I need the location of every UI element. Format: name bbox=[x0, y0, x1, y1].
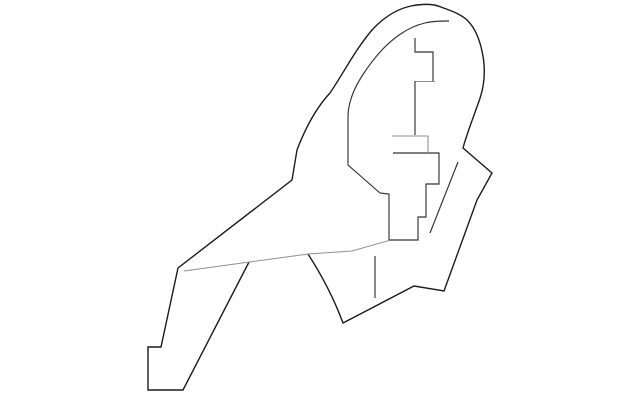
diagram-canvas bbox=[0, 0, 640, 401]
mid-step-gray-spur bbox=[392, 136, 428, 153]
upper-step-cutout bbox=[415, 38, 433, 81]
part-line-drawing bbox=[0, 0, 640, 401]
hatch-diagonal-line bbox=[430, 162, 458, 233]
outer-body-outline bbox=[148, 4, 492, 390]
inner-cutout-outline bbox=[348, 21, 449, 240]
lower-seam-line bbox=[184, 241, 389, 272]
